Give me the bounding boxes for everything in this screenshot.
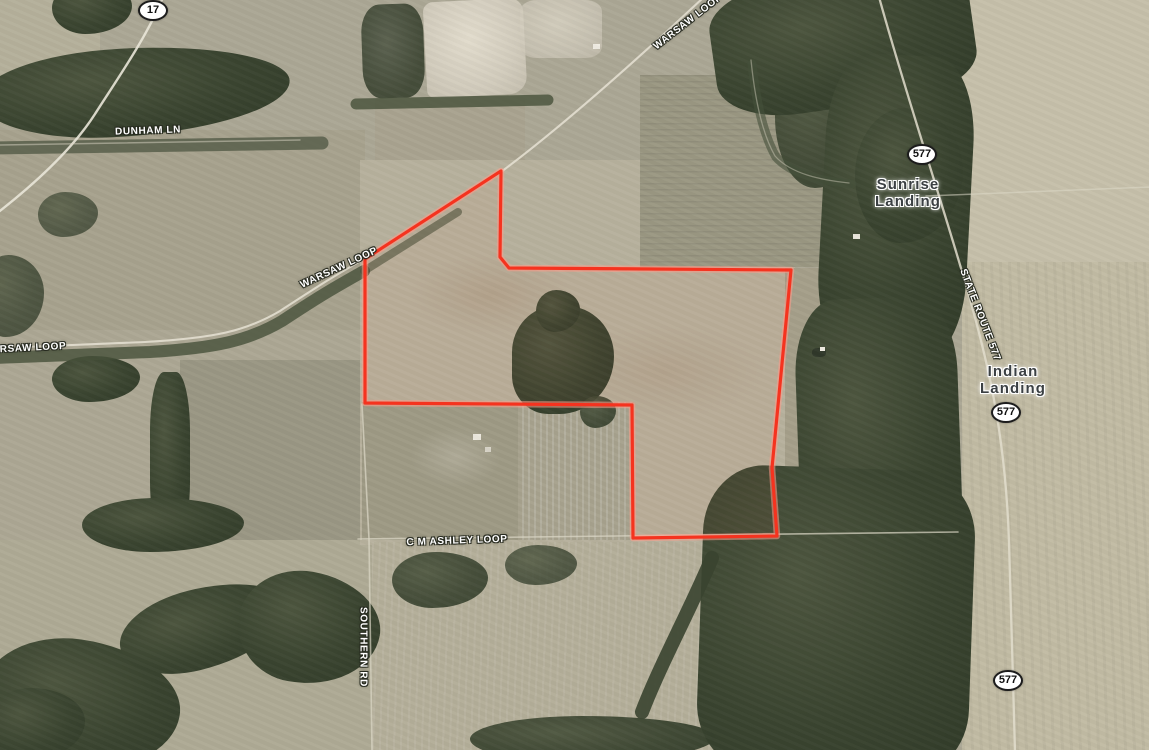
route-shield-route-17: 17	[138, 0, 168, 21]
place-label-sunrise-landing: Sunrise Landing	[875, 176, 941, 211]
road-label-southern-rd: SOUTHERN RD	[358, 607, 369, 687]
road-label-warsaw-loop-left: RSAW LOOP	[0, 341, 67, 355]
road-label-warsaw-loop-top: WARSAW LOOP	[652, 0, 725, 52]
road-label-state-route-577: STATE ROUTE 577	[957, 267, 1002, 362]
map-labels: DUNHAM LNWARSAW LOOPWARSAW LOOPRSAW LOOP…	[0, 0, 1149, 750]
place-label-indian-landing: Indian Landing	[980, 363, 1046, 398]
satellite-map[interactable]: DUNHAM LNWARSAW LOOPWARSAW LOOPRSAW LOOP…	[0, 0, 1149, 750]
road-label-dunham-ln: DUNHAM LN	[115, 124, 181, 137]
route-shield-route-577-south: 577	[993, 670, 1023, 691]
route-shield-route-577-mid: 577	[991, 402, 1021, 423]
road-label-cm-ashley-loop: C M ASHLEY LOOP	[406, 534, 508, 549]
road-label-warsaw-loop-mid: WARSAW LOOP	[299, 245, 380, 290]
route-shield-route-577-north: 577	[907, 144, 937, 165]
